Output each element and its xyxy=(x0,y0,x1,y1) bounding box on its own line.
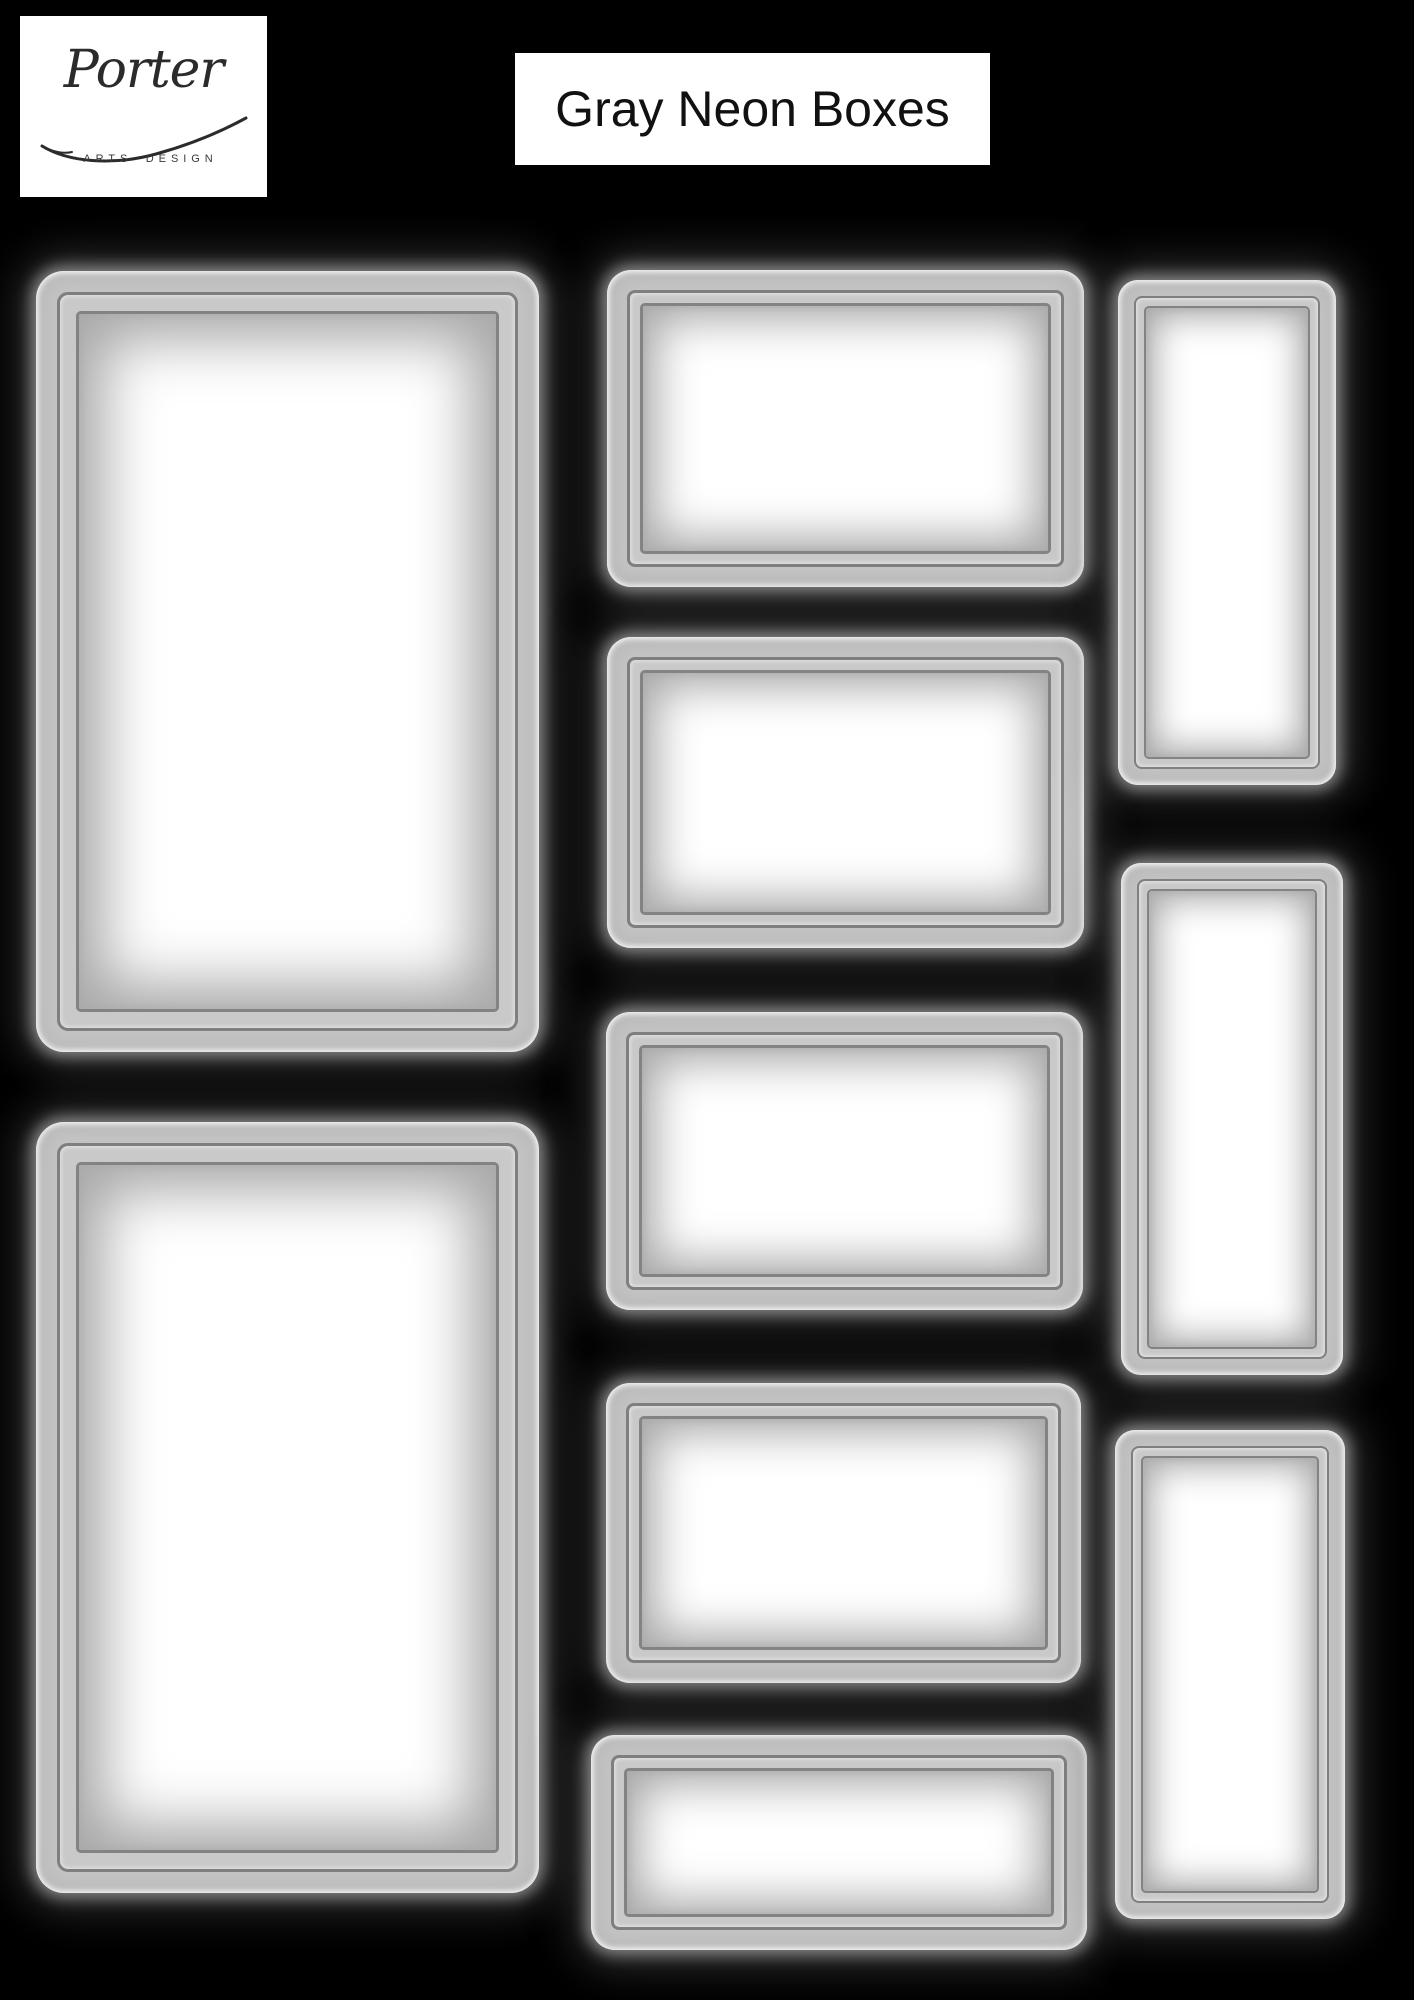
neon-box-ring xyxy=(1137,879,1327,1359)
neon-box-right-2 xyxy=(1121,863,1343,1375)
neon-box-outer-band xyxy=(591,1735,1087,1950)
logo-tagline: ARTS DESIGN xyxy=(20,153,267,165)
neon-box-ring xyxy=(1134,296,1320,769)
neon-box-left-1 xyxy=(36,271,539,1052)
neon-box-outer-band xyxy=(36,271,539,1052)
neon-box-center xyxy=(1144,306,1310,759)
neon-box-center xyxy=(639,1416,1048,1650)
logo-brand-text: Porter xyxy=(20,44,267,96)
neon-box-left-2 xyxy=(36,1122,539,1893)
neon-box-center xyxy=(624,1768,1054,1917)
neon-box-ring xyxy=(1131,1446,1329,1903)
neon-box-center xyxy=(76,311,499,1012)
page-title: Gray Neon Boxes xyxy=(555,80,950,138)
neon-box-outer-band xyxy=(607,637,1084,948)
logo-card: Porter ARTS DESIGN xyxy=(20,16,267,197)
neon-box-ring xyxy=(626,1403,1061,1663)
neon-box-outer-band xyxy=(1121,863,1343,1375)
neon-box-ring xyxy=(57,292,518,1031)
neon-box-center xyxy=(640,670,1051,915)
neon-box-center xyxy=(1147,889,1317,1349)
neon-box-ring xyxy=(626,1032,1063,1290)
neon-box-right-1 xyxy=(1118,280,1336,785)
title-card: Gray Neon Boxes xyxy=(515,53,990,165)
neon-box-ring xyxy=(611,1755,1067,1930)
neon-box-center xyxy=(1141,1456,1319,1893)
neon-box-middle-5 xyxy=(591,1735,1087,1950)
neon-box-center xyxy=(639,1045,1050,1277)
neon-box-middle-3 xyxy=(606,1012,1083,1310)
neon-box-ring xyxy=(57,1143,518,1872)
neon-box-ring xyxy=(627,657,1064,928)
neon-box-middle-1 xyxy=(607,270,1084,587)
neon-box-outer-band xyxy=(606,1383,1081,1683)
neon-box-ring xyxy=(627,290,1064,567)
neon-box-middle-2 xyxy=(607,637,1084,948)
neon-box-outer-band xyxy=(36,1122,539,1893)
neon-box-outer-band xyxy=(606,1012,1083,1310)
neon-box-outer-band xyxy=(607,270,1084,587)
neon-box-outer-band xyxy=(1115,1430,1345,1919)
neon-box-middle-4 xyxy=(606,1383,1081,1683)
neon-box-outer-band xyxy=(1118,280,1336,785)
neon-box-center xyxy=(76,1162,499,1853)
page-canvas: Porter ARTS DESIGN Gray Neon Boxes xyxy=(0,0,1414,2000)
neon-box-right-3 xyxy=(1115,1430,1345,1919)
neon-box-center xyxy=(640,303,1051,554)
